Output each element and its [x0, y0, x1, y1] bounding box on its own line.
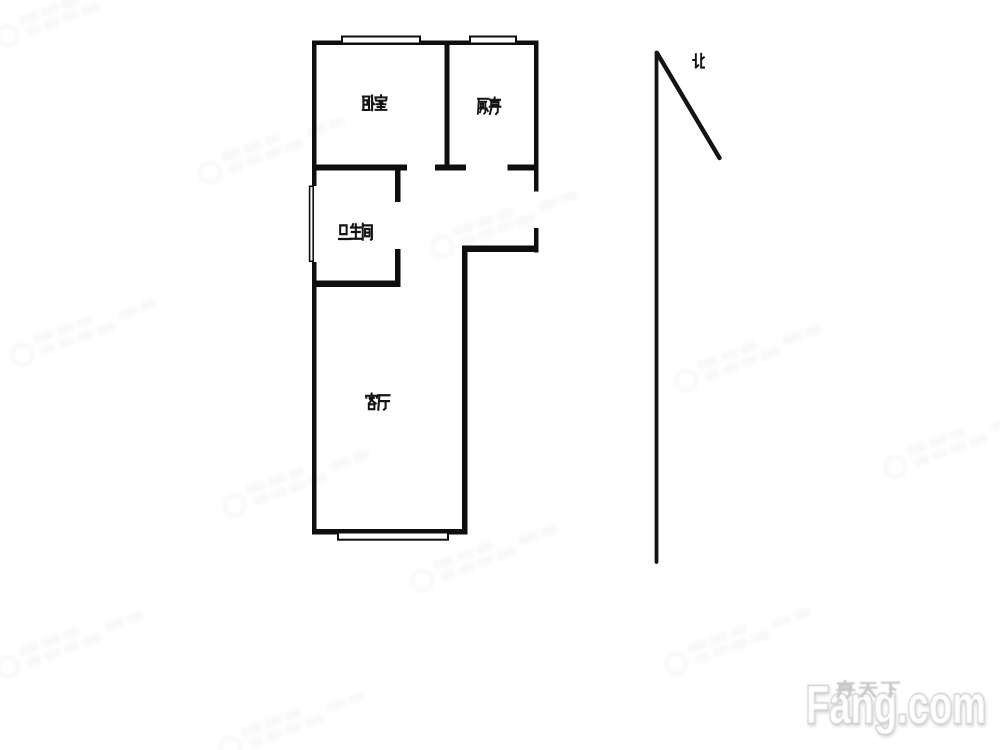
svg-text:Fang.com: Fang.com [806, 675, 986, 735]
